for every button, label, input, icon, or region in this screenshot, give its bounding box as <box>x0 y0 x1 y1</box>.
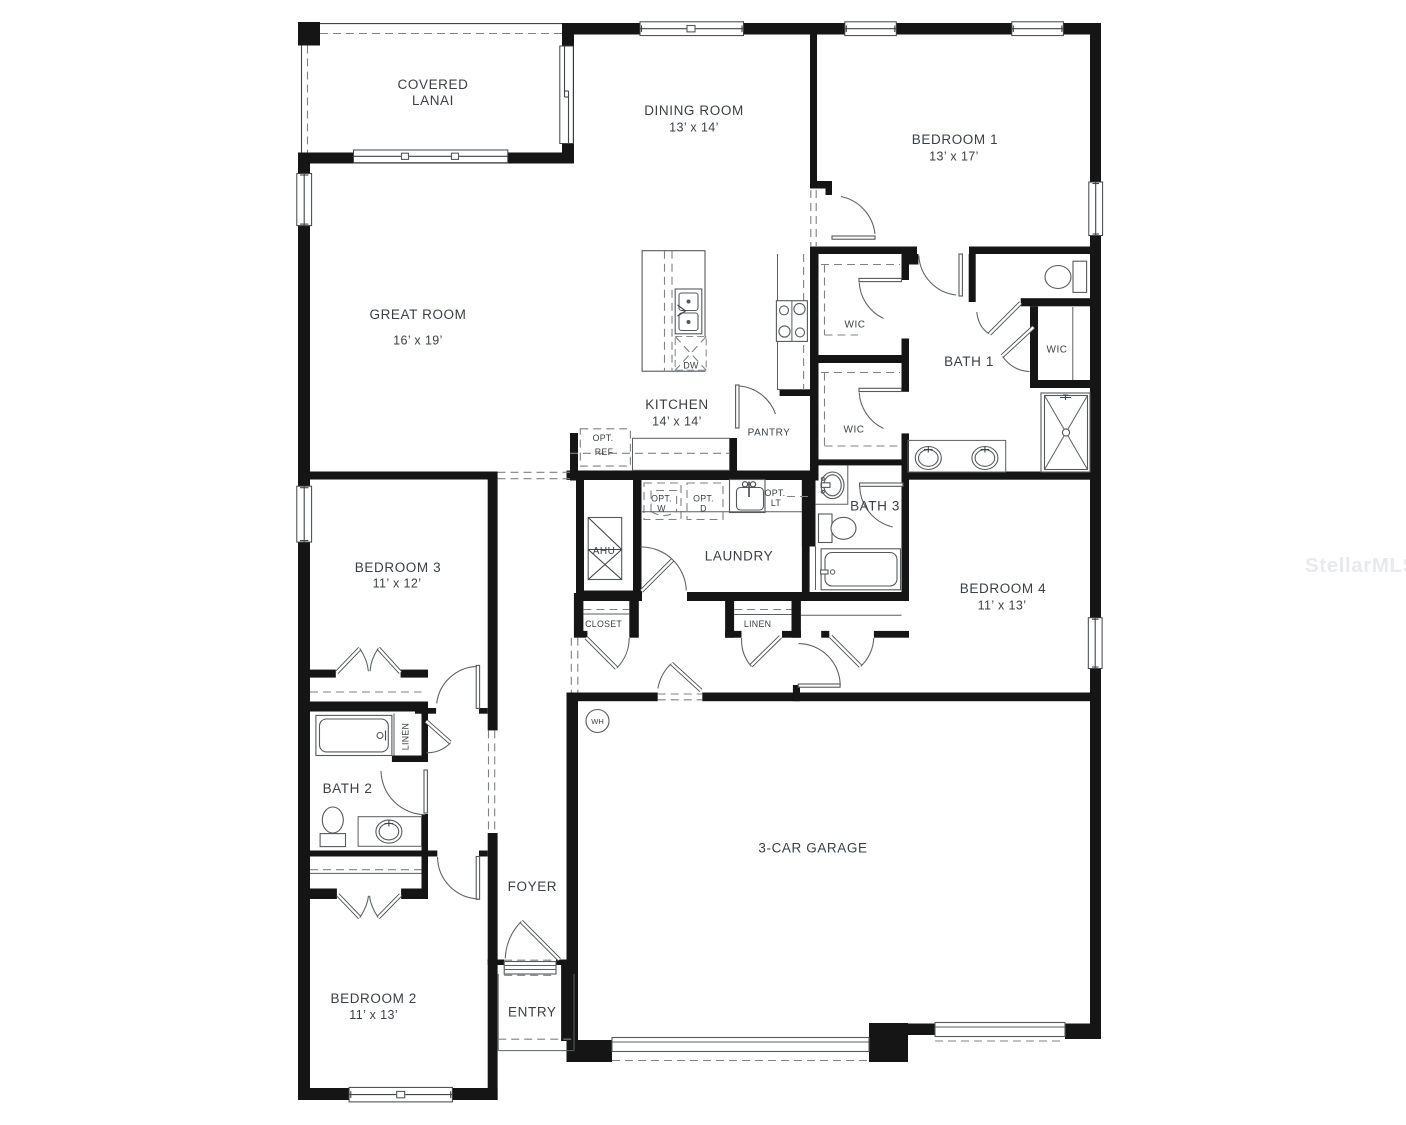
svg-text:WIC: WIC <box>844 425 865 436</box>
svg-text:BEDROOM 2: BEDROOM 2 <box>330 991 416 1006</box>
svg-text:StellarMLS: StellarMLS <box>1305 554 1406 577</box>
svg-text:WH: WH <box>591 717 604 726</box>
svg-text:BATH 3: BATH 3 <box>850 499 900 514</box>
svg-text:LINEN: LINEN <box>400 723 410 750</box>
svg-text:DINING ROOM: DINING ROOM <box>644 103 744 118</box>
svg-text:LT: LT <box>771 498 782 508</box>
svg-text:KITCHEN: KITCHEN <box>645 397 708 412</box>
svg-text:REF: REF <box>595 447 614 457</box>
svg-text:OPT.: OPT. <box>651 494 672 504</box>
svg-text:LINEN: LINEN <box>744 619 771 629</box>
svg-text:OPT.: OPT. <box>593 433 614 443</box>
svg-text:BEDROOM 3: BEDROOM 3 <box>355 560 441 575</box>
svg-text:13’ x 17’: 13’ x 17’ <box>929 150 979 164</box>
svg-text:W: W <box>657 504 666 514</box>
svg-text:BATH 2: BATH 2 <box>323 781 373 796</box>
svg-text:COVERED: COVERED <box>398 77 469 92</box>
svg-text:13’ x 14’: 13’ x 14’ <box>669 121 719 135</box>
svg-text:14’ x 14’: 14’ x 14’ <box>652 415 702 429</box>
svg-text:11’ x 13’: 11’ x 13’ <box>349 1008 398 1022</box>
svg-text:BEDROOM 1: BEDROOM 1 <box>912 132 998 147</box>
svg-text:3-CAR GARAGE: 3-CAR GARAGE <box>758 841 867 856</box>
svg-text:PANTRY: PANTRY <box>748 428 791 439</box>
svg-text:D: D <box>700 504 707 514</box>
svg-text:11’ x 13’: 11’ x 13’ <box>978 599 1027 613</box>
svg-text:16’ x 19’: 16’ x 19’ <box>393 334 443 348</box>
svg-text:FOYER: FOYER <box>508 879 558 894</box>
svg-text:CLOSET: CLOSET <box>585 619 622 629</box>
svg-text:OPT.: OPT. <box>693 494 714 504</box>
svg-text:LANAI: LANAI <box>412 93 454 108</box>
svg-text:OPT.: OPT. <box>765 488 786 498</box>
svg-text:DW: DW <box>683 361 699 371</box>
svg-text:BATH 1: BATH 1 <box>944 354 994 369</box>
svg-text:ENTRY: ENTRY <box>508 1005 557 1020</box>
svg-text:BEDROOM 4: BEDROOM 4 <box>960 581 1046 596</box>
svg-text:LAUNDRY: LAUNDRY <box>705 549 773 564</box>
svg-text:WIC: WIC <box>845 320 866 331</box>
svg-text:11’ x 12’: 11’ x 12’ <box>373 577 422 591</box>
svg-text:GREAT ROOM: GREAT ROOM <box>369 307 466 322</box>
svg-text:WIC: WIC <box>1047 345 1068 356</box>
svg-text:AHU: AHU <box>593 546 616 557</box>
